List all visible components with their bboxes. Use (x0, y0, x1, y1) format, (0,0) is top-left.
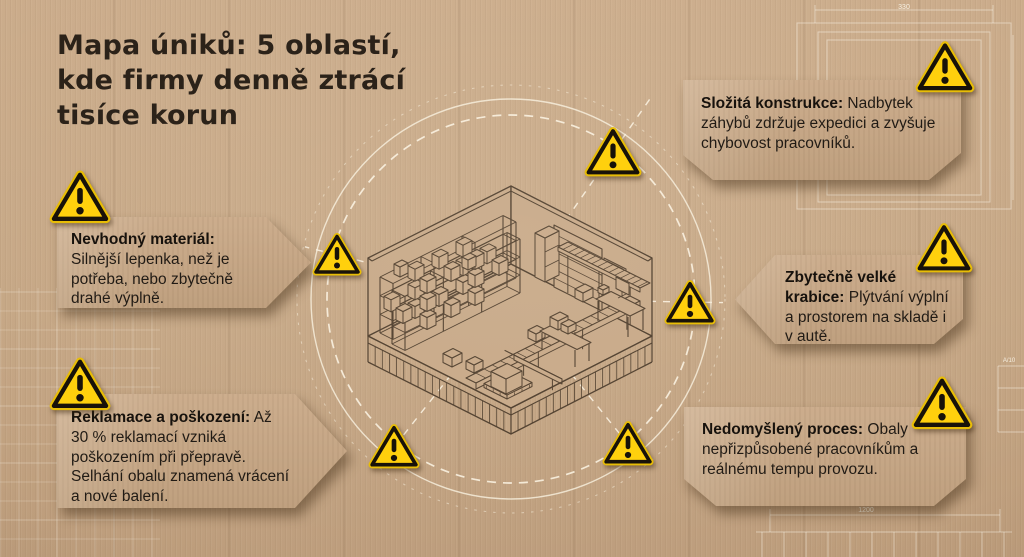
callout-text: Nevhodný materiál: Silnější lepenka, než… (71, 230, 259, 309)
warning-triangle-icon (915, 40, 975, 93)
callout-body: Složitá konstrukce: Nadbytek záhybů zdrž… (683, 80, 961, 180)
warning-triangle-icon (602, 420, 654, 466)
callout-lead: Reklamace a poškození: (71, 409, 250, 426)
warning-triangle-icon (911, 375, 973, 430)
callout-reklamace-a-poskozeni: Reklamace a poškození: Až 30 % reklamací… (57, 394, 347, 508)
callout-lead: Nevhodný materiál: (71, 231, 215, 248)
callout-text: Zbytečně velké krabice: Plýtvání výplní … (785, 268, 949, 347)
warning-triangle-icon (49, 356, 111, 411)
callout-lead: Nedomyšlený proces: (702, 421, 863, 438)
callout-rest: Silnější lepenka, než je potřeba, nebo z… (71, 251, 233, 308)
infographic-canvas: 3301200A/10 Mapa úniků: 5 oblastí, kde f… (0, 0, 1024, 557)
callout-text: Složitá konstrukce: Nadbytek záhybů zdrž… (701, 94, 945, 153)
warning-triangle-icon (368, 423, 420, 469)
warning-triangle-icon (584, 126, 642, 177)
callout-lead: Složitá konstrukce: (701, 95, 843, 112)
callout-text: Reklamace a poškození: Až 30 % reklamací… (71, 408, 289, 507)
blueprint-dimension-label: 1200 (858, 507, 874, 514)
blueprint-dimension-label: 330 (898, 4, 910, 11)
callout-slozita-konstrukce: Složitá konstrukce: Nadbytek záhybů zdrž… (683, 80, 961, 180)
warning-triangle-icon (915, 222, 973, 273)
blueprint-dimension-label: A/10 (1003, 358, 1016, 364)
callout-nevhodny-material: Nevhodný materiál: Silnější lepenka, než… (57, 217, 311, 308)
page-title: Mapa úniků: 5 oblastí, kde firmy denně z… (57, 28, 477, 133)
callout-body: Reklamace a poškození: Až 30 % reklamací… (57, 394, 347, 508)
warning-triangle-icon (49, 169, 111, 224)
warning-triangle-icon (664, 279, 716, 325)
warning-triangle-icon (312, 232, 362, 276)
callout-body: Nevhodný materiál: Silnější lepenka, než… (57, 217, 311, 308)
